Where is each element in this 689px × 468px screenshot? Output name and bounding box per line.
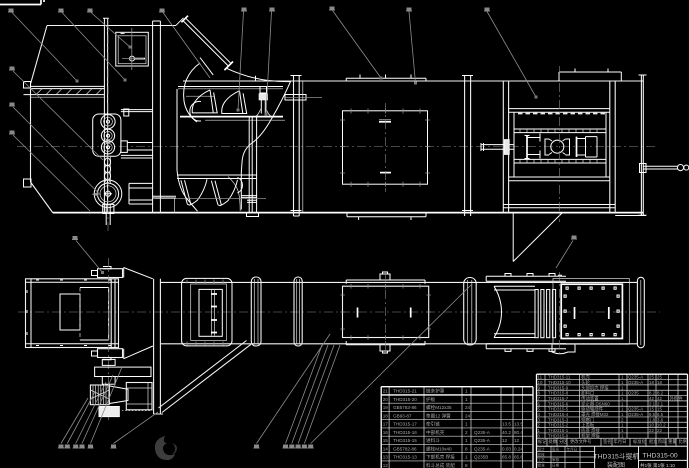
svg-text:65.8: 65.8: [502, 455, 511, 460]
svg-text:进料斗: 进料斗: [426, 437, 440, 444]
svg-text:THD315-17: THD315-17: [393, 422, 417, 427]
svg-text:日期: 日期: [552, 463, 560, 468]
svg-text:12: 12: [383, 463, 389, 468]
svg-text:签名: 签名: [603, 438, 612, 445]
svg-text:1: 1: [465, 455, 468, 460]
svg-text:Q235-A: Q235-A: [628, 375, 643, 380]
svg-text:22: 22: [657, 428, 662, 433]
svg-text:THD315斗提机: THD315斗提机: [594, 452, 640, 461]
svg-text:THD315-13: THD315-13: [393, 455, 417, 460]
svg-text:40.2: 40.2: [502, 430, 511, 435]
svg-text:Q235B: Q235B: [474, 455, 488, 460]
svg-text:GB93-87: GB93-87: [393, 413, 412, 418]
svg-text:签名: 签名: [552, 446, 560, 451]
svg-text:2: 2: [465, 430, 468, 435]
svg-text:THD315-20: THD315-20: [393, 397, 417, 402]
svg-text:中部机壳: 中部机壳: [426, 429, 445, 436]
svg-text:Q235: Q235: [628, 391, 639, 396]
svg-text:下部机壳 焊接: 下部机壳 焊接: [426, 454, 455, 461]
svg-text:25: 25: [649, 375, 654, 380]
svg-text:1: 1: [465, 422, 468, 427]
svg-text:14: 14: [383, 446, 389, 451]
svg-text:13.5: 13.5: [502, 422, 511, 427]
svg-text:审核: 审核: [552, 457, 560, 462]
svg-text:THD315-5: THD315-5: [548, 407, 569, 412]
svg-text:1: 1: [465, 438, 468, 443]
svg-text:比例: 比例: [679, 438, 688, 445]
svg-text:0.03: 0.03: [502, 446, 511, 451]
svg-text:19: 19: [383, 405, 389, 410]
svg-text:10: 10: [538, 380, 543, 385]
svg-text:外购件: 外购件: [670, 395, 684, 402]
svg-text:8: 8: [465, 463, 468, 468]
svg-text:THD315-4: THD315-4: [548, 412, 569, 417]
svg-text:共1张 第1张 1:10: 共1张 第1张 1:10: [640, 462, 675, 468]
svg-text:15: 15: [383, 438, 389, 443]
svg-text:11: 11: [538, 375, 543, 380]
svg-text:批准: 批准: [649, 438, 658, 445]
svg-text:更改文件号: 更改文件号: [570, 438, 591, 445]
svg-text:阶段: 阶段: [658, 438, 667, 445]
svg-text:13.5: 13.5: [514, 422, 523, 427]
svg-text:65.8: 65.8: [514, 455, 523, 460]
svg-text:THD315-00: THD315-00: [643, 453, 678, 460]
svg-text:GB5783-86: GB5783-86: [393, 405, 417, 410]
svg-text:年月日: 年月日: [614, 438, 627, 445]
svg-text:THD315-16: THD315-16: [393, 430, 417, 435]
svg-text:牵引链: 牵引链: [426, 421, 440, 428]
svg-text:THD315-10: THD315-10: [548, 380, 571, 385]
svg-text:18: 18: [657, 380, 662, 385]
svg-text:18: 18: [649, 380, 654, 385]
svg-text:处数: 处数: [549, 438, 558, 445]
svg-text:8.2: 8.2: [649, 391, 656, 396]
svg-text:12: 12: [502, 438, 508, 443]
svg-text:0.24: 0.24: [514, 446, 523, 451]
svg-text:42: 42: [649, 396, 654, 401]
svg-text:Q235-A: Q235-A: [628, 380, 643, 385]
svg-text:16: 16: [383, 430, 389, 435]
svg-text:2.1: 2.1: [657, 401, 664, 406]
svg-text:1: 1: [465, 389, 468, 394]
svg-text:THD315-21: THD315-21: [393, 389, 417, 394]
svg-text:80.4: 80.4: [514, 430, 523, 435]
svg-text:Q235-A: Q235-A: [474, 430, 491, 435]
svg-text:THD315-3: THD315-3: [548, 417, 569, 422]
svg-text:THD315-6: THD315-6: [548, 401, 569, 406]
svg-text:8: 8: [465, 446, 468, 451]
svg-text:设计: 设计: [538, 446, 546, 451]
svg-text:Q235-A: Q235-A: [474, 446, 491, 451]
svg-text:THD315-8: THD315-8: [548, 391, 569, 396]
svg-text:22: 22: [649, 428, 654, 433]
svg-text:垫圈12 弹簧: 垫圈12 弹簧: [426, 412, 451, 419]
svg-text:GB5782-86: GB5782-86: [393, 446, 417, 451]
svg-text:42: 42: [657, 396, 662, 401]
svg-text:10.2: 10.2: [657, 423, 666, 428]
svg-text:THD315-0: THD315-0: [548, 433, 569, 438]
svg-text:螺栓M12x35: 螺栓M12x35: [426, 404, 452, 411]
svg-text:24: 24: [465, 405, 471, 410]
svg-text:工艺: 工艺: [538, 457, 546, 462]
svg-text:THD315-15: THD315-15: [393, 438, 417, 443]
svg-text:装配图: 装配图: [607, 461, 625, 468]
svg-text:护板: 护板: [426, 396, 436, 403]
svg-text:1: 1: [465, 397, 468, 402]
svg-text:THD315-1: THD315-1: [548, 428, 569, 433]
svg-text:标准化: 标准化: [633, 438, 647, 445]
svg-text:8.2: 8.2: [657, 391, 664, 396]
svg-text:THD315-11: THD315-11: [548, 375, 571, 380]
svg-text:6.5: 6.5: [649, 412, 656, 417]
svg-text:年月日: 年月日: [567, 446, 578, 451]
svg-text:标记: 标记: [538, 438, 547, 445]
svg-text:Q235-A: Q235-A: [628, 407, 643, 412]
svg-text:校核: 校核: [538, 452, 546, 457]
svg-text:13: 13: [383, 455, 389, 460]
svg-text:链条护罩: 链条护罩: [426, 388, 445, 395]
svg-text:THD315-9: THD315-9: [548, 385, 569, 390]
svg-text:1.8: 1.8: [649, 417, 656, 422]
svg-text:15: 15: [657, 407, 662, 412]
svg-text:2.1: 2.1: [649, 401, 656, 406]
svg-text:分区: 分区: [559, 438, 568, 445]
svg-text:24: 24: [465, 413, 471, 418]
svg-text:料斗总成 装配: 料斗总成 装配: [426, 462, 455, 468]
svg-text:18: 18: [383, 413, 389, 418]
svg-text:20: 20: [383, 397, 389, 402]
svg-text:3.6: 3.6: [657, 417, 664, 422]
svg-text:17: 17: [383, 422, 389, 427]
svg-text:6.5: 6.5: [657, 412, 664, 417]
svg-text:螺栓M10x40: 螺栓M10x40: [426, 445, 452, 452]
svg-text:重量: 重量: [668, 438, 677, 445]
svg-text:15: 15: [649, 407, 654, 412]
svg-text:12: 12: [514, 438, 520, 443]
svg-text:批准: 批准: [538, 463, 546, 468]
svg-text:21: 21: [383, 389, 389, 394]
svg-text:THD315-2: THD315-2: [548, 423, 569, 428]
svg-text:Q235-A: Q235-A: [628, 412, 643, 417]
svg-text:THD315-7: THD315-7: [548, 396, 569, 401]
svg-text:Q235-A: Q235-A: [474, 438, 491, 443]
svg-text:25: 25: [657, 375, 662, 380]
